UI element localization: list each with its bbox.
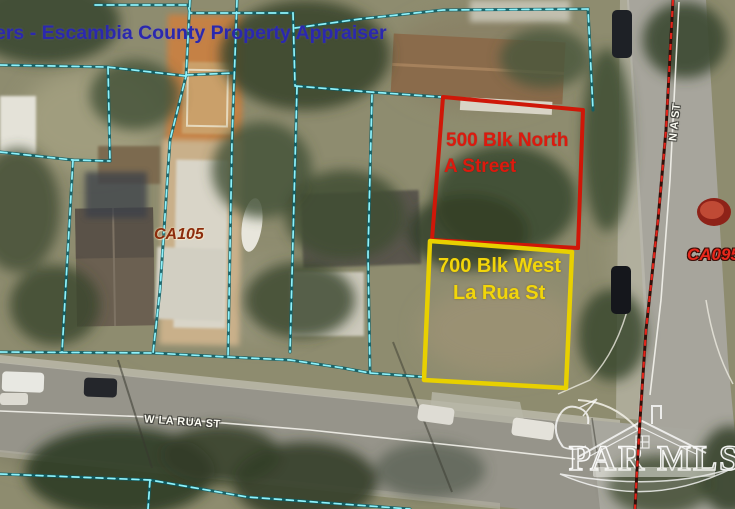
red-car-top: [700, 201, 724, 219]
aerial-map[interactable]: PAR MLS ers - Escambia County Property A…: [0, 0, 735, 509]
dark-car: [84, 377, 118, 397]
white-truck: [2, 371, 45, 392]
dark-car-na-2: [611, 266, 631, 314]
white-car-2: [0, 393, 28, 405]
aerial-photo: PAR MLS: [0, 0, 735, 509]
dark-car-na-1: [612, 10, 632, 58]
